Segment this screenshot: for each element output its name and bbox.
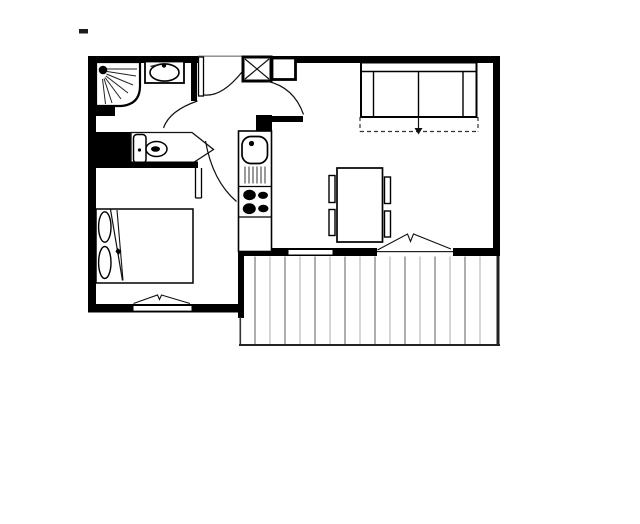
floor-plan-svg xyxy=(0,0,640,524)
balcony-bottom-edge-line xyxy=(239,344,500,346)
balcony-door-sill-line xyxy=(377,251,453,252)
kitchen-corner-wall-block xyxy=(256,115,272,131)
balcony-left-edge-line xyxy=(240,317,242,345)
kitchen-group xyxy=(239,131,272,252)
left-outer-wall xyxy=(88,56,96,312)
chair-icon xyxy=(385,177,391,204)
toilet-drain-dot xyxy=(151,146,160,152)
balcony-right-edge-line xyxy=(497,256,500,346)
pillow-icon xyxy=(99,247,111,279)
bathroom-partition-wall xyxy=(191,56,197,101)
chair-icon xyxy=(329,210,335,236)
wc-wall-block xyxy=(95,132,131,166)
pillow-icon xyxy=(99,212,111,242)
right-outer-wall xyxy=(493,56,500,256)
entry-door-icon xyxy=(199,57,204,96)
scan-artifact-mark xyxy=(79,29,88,34)
entry-threshold-line xyxy=(198,56,243,57)
chair-icon xyxy=(385,211,391,237)
living-bottom-wall xyxy=(240,248,500,256)
wc-bottom-wall xyxy=(88,162,198,169)
chair-icon xyxy=(329,176,335,203)
floor-plan-page xyxy=(0,0,640,524)
kitchen-tap-dot xyxy=(249,141,254,146)
hallway-wall-segment xyxy=(272,116,303,122)
kitchen-sink-icon xyxy=(242,137,268,164)
dining-table-icon xyxy=(337,168,383,242)
wardrobe-box-icon xyxy=(272,58,296,80)
shower-head-dot xyxy=(99,66,108,75)
toilet-cistern-dot xyxy=(138,148,141,151)
washbasin-tap-dot xyxy=(162,63,166,67)
balcony-left-wall xyxy=(238,248,244,318)
bedroom-window-opening xyxy=(134,306,192,311)
living-window-opening xyxy=(289,250,333,255)
